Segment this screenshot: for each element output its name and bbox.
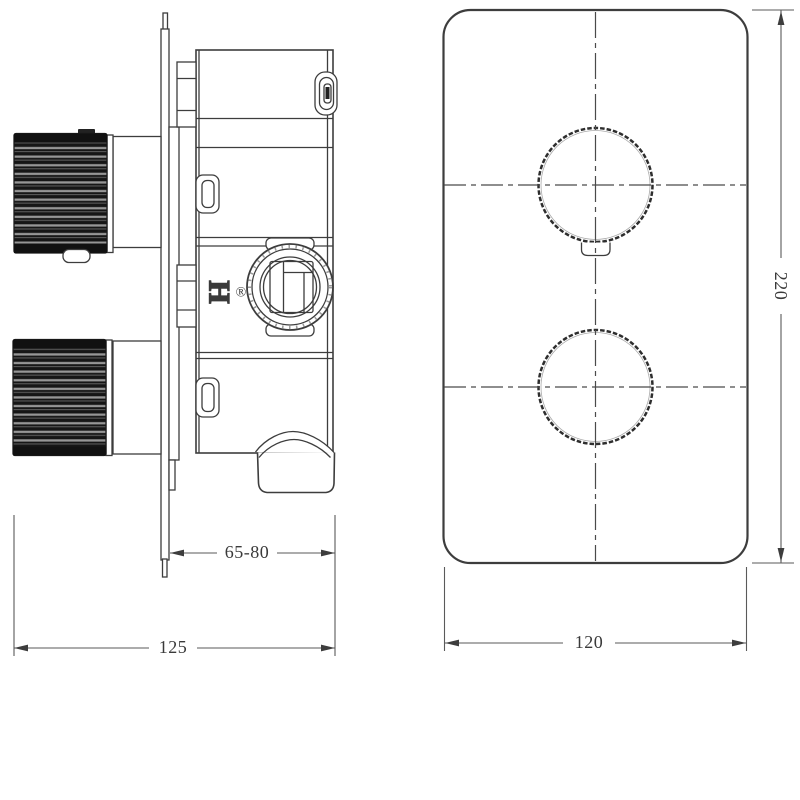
dim-width-125: 125 bbox=[14, 515, 335, 657]
dim-width-120: 120 bbox=[445, 567, 747, 652]
knob-rim bbox=[107, 135, 113, 253]
arrowhead bbox=[445, 640, 459, 647]
arrowhead bbox=[778, 11, 785, 25]
top-right-port bbox=[315, 72, 337, 115]
top-inlet-hex-fitting bbox=[177, 62, 196, 127]
arrowhead bbox=[321, 645, 335, 652]
drawing-svg: H ® bbox=[0, 0, 800, 800]
temp-limit-button bbox=[63, 250, 90, 263]
arrowhead bbox=[732, 640, 746, 647]
arrowhead bbox=[321, 550, 335, 557]
arrowhead bbox=[170, 550, 184, 557]
flow-knob bbox=[13, 340, 161, 456]
dim-depth-65-80: 65-80 bbox=[170, 515, 335, 656]
arrowhead bbox=[778, 548, 785, 562]
dim-height-220: 220 bbox=[752, 10, 794, 563]
knob-stem bbox=[113, 341, 161, 454]
knob-knurled-face bbox=[13, 340, 106, 456]
dim-text-plate-height: 220 bbox=[771, 272, 791, 301]
technical-drawing-shower-valve: H ® bbox=[0, 0, 800, 800]
side-view: H ® bbox=[13, 13, 337, 577]
knob-knurled-face bbox=[14, 134, 107, 254]
center-hex-fitting bbox=[177, 265, 196, 327]
logo-letter: H bbox=[203, 280, 236, 303]
arrowhead bbox=[14, 645, 28, 652]
registered-mark: ® bbox=[236, 286, 247, 301]
side-view-dimensions: 65-80 125 bbox=[14, 515, 335, 657]
knob-stem bbox=[113, 137, 161, 248]
dim-text-depth-range: 65-80 bbox=[225, 542, 270, 562]
wall-plate bbox=[161, 13, 169, 577]
side-port-upper bbox=[196, 175, 219, 213]
temperature-knob bbox=[14, 129, 161, 263]
knob-rim bbox=[106, 340, 112, 456]
side-port-lower bbox=[196, 378, 219, 417]
front-view bbox=[444, 10, 748, 563]
dim-text-overall-depth: 125 bbox=[159, 637, 188, 657]
dim-text-plate-width: 120 bbox=[575, 632, 604, 652]
